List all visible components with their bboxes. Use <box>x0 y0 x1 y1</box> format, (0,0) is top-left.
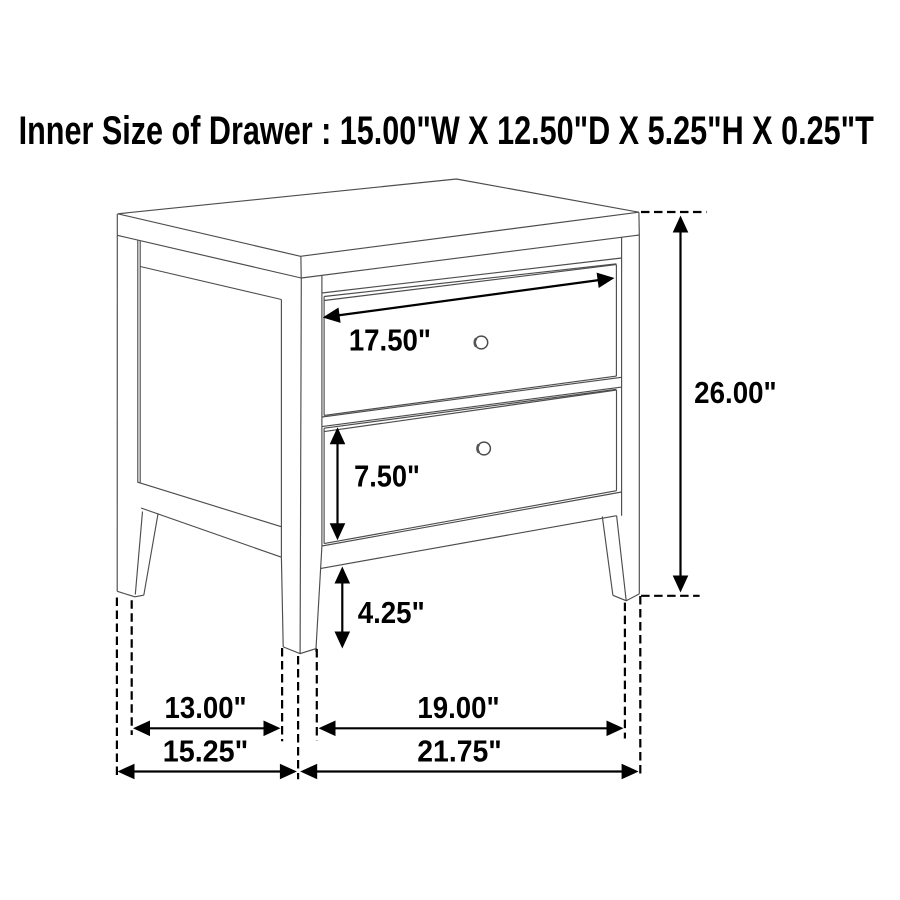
svg-text:Inner Size of Drawer : 15.00"W: Inner Size of Drawer : 15.00"W X 12.50"D… <box>19 108 874 153</box>
svg-text:19.00": 19.00" <box>417 691 499 726</box>
svg-text:15.25": 15.25" <box>163 735 249 769</box>
svg-text:17.50": 17.50" <box>349 323 431 358</box>
svg-text:13.00": 13.00" <box>165 691 247 726</box>
svg-text:4.25": 4.25" <box>358 596 425 631</box>
svg-text:26.00": 26.00" <box>694 375 776 410</box>
svg-text:7.50": 7.50" <box>354 460 420 494</box>
svg-text:21.75": 21.75" <box>417 734 501 768</box>
